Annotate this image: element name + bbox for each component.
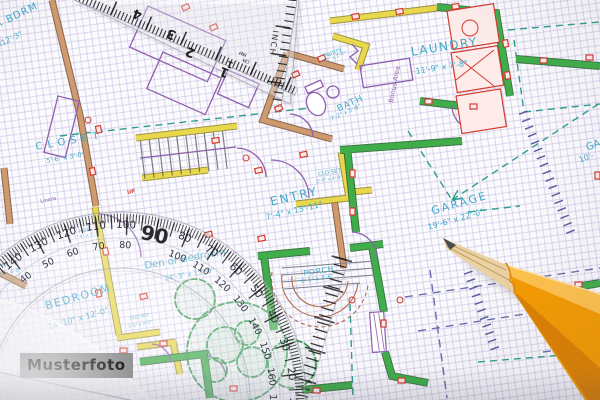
svg-text:20: 20 (284, 367, 298, 382)
svg-text:70: 70 (92, 241, 106, 254)
photo-floor-plan: R BDRM x12'-3" CLOSET 5'-6" x 3'-0" BATH… (0, 0, 600, 400)
svg-text:100: 100 (116, 219, 136, 232)
ruler-edge-ticks (300, 256, 349, 400)
svg-text:170: 170 (267, 394, 279, 400)
drafting-instruments: 4 3 2 1 1 MM CM INCH 140 130 (0, 0, 600, 400)
pencil (443, 238, 600, 400)
svg-text:80: 80 (119, 240, 131, 251)
watermark: Musterfoto (20, 353, 133, 378)
set-square-ruler: 4 3 2 1 1 MM CM INCH (70, 0, 303, 109)
